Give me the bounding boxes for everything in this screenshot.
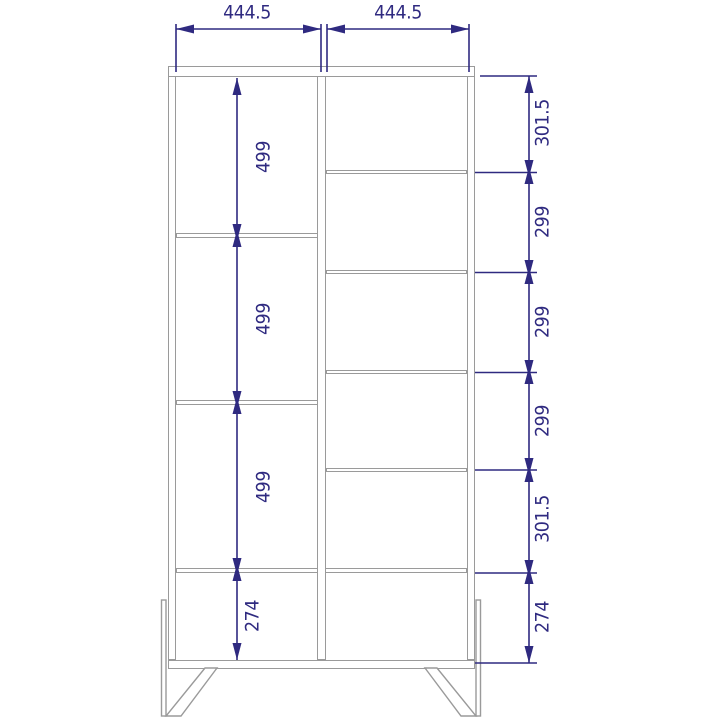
leg-right-vertical-bar [476,600,481,716]
dim-label-left-bay-height-1: 499 [255,141,274,173]
leg-left-vertical-bar [162,600,167,716]
dim-label-right-side-height-6: 274 [534,601,553,633]
dim-label-left-bay-height-2: 499 [255,303,274,335]
leg-left [162,600,218,716]
technical-drawing-canvas: 444.5 444.5 499 499 499 274 301.5 299 29… [0,0,720,720]
leg-right [425,600,481,716]
leg-right-angled-bar [425,668,476,716]
dim-label-right-side-height-3: 299 [534,306,553,338]
dim-label-left-bay-height-4: 274 [244,600,263,632]
leg-left-angled-bar [166,668,217,716]
dim-label-top-left-bay-width: 444.5 [223,4,271,23]
dimension-arrowheads [176,25,534,664]
dim-label-right-side-height-4: 299 [534,405,553,437]
dim-label-left-bay-height-3: 499 [255,471,274,503]
dimension-lines [176,24,537,663]
dimension-and-leg-linework [0,0,720,720]
dim-label-top-right-bay-width: 444.5 [374,4,422,23]
dim-label-right-side-height-2: 299 [534,206,553,238]
dim-label-right-side-height-5: 301.5 [534,495,553,543]
dim-label-right-side-height-1: 301.5 [534,99,553,147]
